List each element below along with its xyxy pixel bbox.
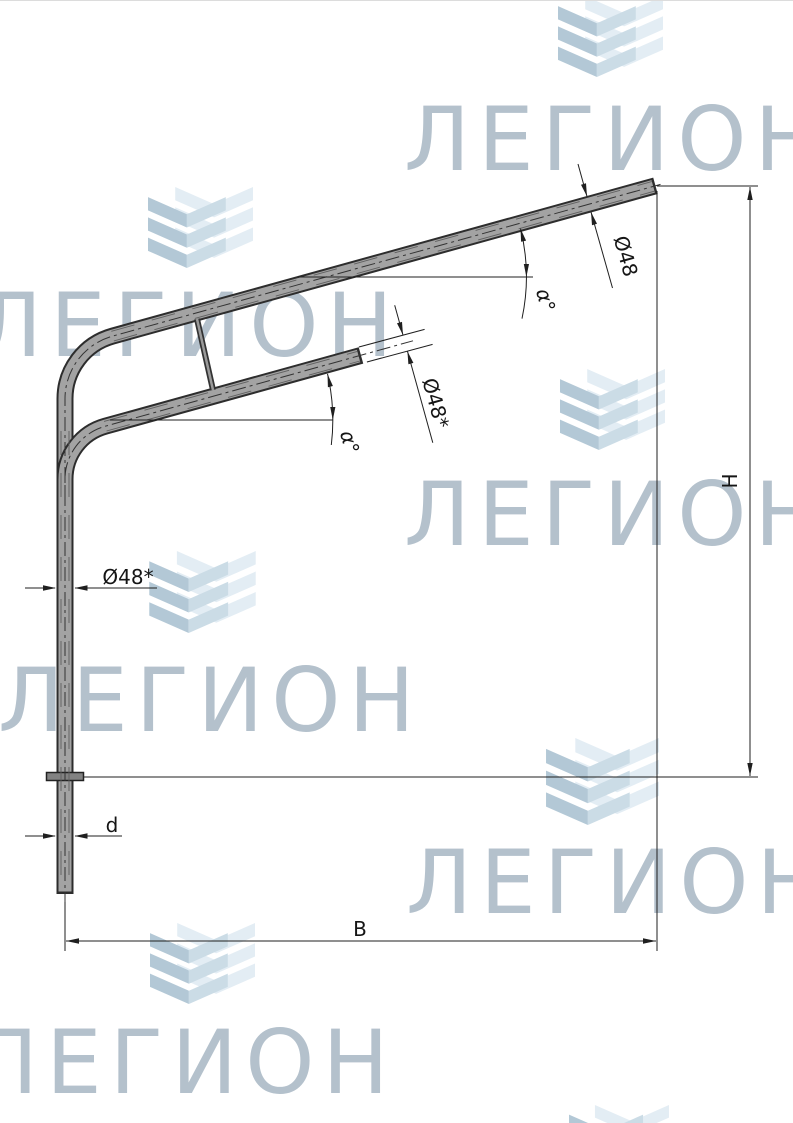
arrowhead (43, 585, 56, 590)
dimension-lines (25, 164, 758, 951)
arrowhead (43, 833, 56, 838)
upper-arm-diameter-label: Ø48 (609, 233, 643, 279)
lower-arm-diameter-label: Ø48* (417, 375, 454, 431)
arrowhead (581, 183, 587, 196)
width-dimension-label: B (353, 917, 367, 941)
arrowhead (397, 322, 403, 335)
upper-angle-label: α° (531, 286, 560, 315)
upper-angle-arc (521, 229, 527, 319)
pole-diameter-label: Ø48* (102, 565, 153, 589)
pole-and-upper-arm-tube (65, 186, 656, 894)
dimension-arrowheads (43, 183, 753, 943)
arm-strut-fill (197, 319, 213, 390)
arrowhead (747, 763, 752, 776)
drawing-page: ЛЕГИОН ЛЕГИОН ЛЕГИОН ЛЕГИОН ЛЕГИОН ЛЕГИО… (0, 0, 793, 1123)
lower-dia-ext-bottom (367, 344, 433, 362)
arrowhead (643, 938, 656, 943)
arrowhead (407, 351, 413, 364)
arrowhead (328, 374, 333, 387)
arrowhead (75, 585, 88, 590)
dimension-labels: Ø48 Ø48* Ø48* α° α° H B d (102, 233, 742, 941)
arrowhead (524, 264, 529, 277)
height-dimension-label: H (718, 473, 742, 488)
arrowhead (330, 407, 335, 420)
arrowhead (66, 938, 79, 943)
lower-dia-ext-top (359, 329, 425, 347)
arrowhead (591, 212, 597, 225)
lower-angle-label: α° (335, 428, 364, 457)
upper-arm-centerline (65, 184, 661, 906)
bracket-drawing: Ø48 Ø48* Ø48* α° α° H B d (0, 1, 793, 1123)
pole-and-upper-arm-tube-fill (65, 186, 653, 891)
arrowhead (747, 187, 752, 200)
pole-end-diameter-label: d (106, 813, 119, 837)
bracket-structure (47, 182, 661, 906)
arrowhead (75, 833, 88, 838)
